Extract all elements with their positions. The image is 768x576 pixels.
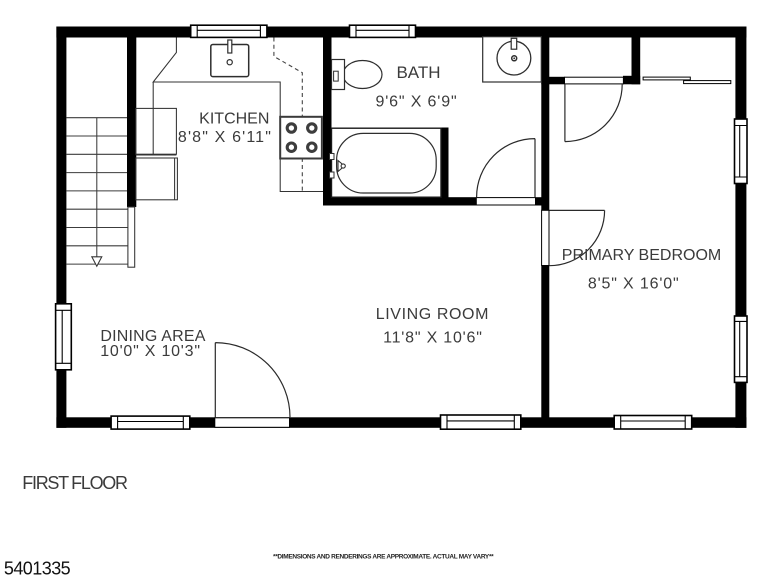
svg-text:**DIMENSIONS AND RENDERINGS AR: **DIMENSIONS AND RENDERINGS ARE APPROXIM…: [273, 554, 494, 561]
svg-text:BATH: BATH: [396, 63, 440, 82]
svg-text:LIVING ROOM: LIVING ROOM: [376, 306, 489, 323]
svg-text:FIRST FLOOR: FIRST FLOOR: [22, 473, 128, 493]
svg-text:10'0" X 10'3": 10'0" X 10'3": [100, 343, 201, 360]
svg-text:9'6" X 6'9": 9'6" X 6'9": [376, 94, 458, 111]
svg-text:8'8" X 6'11": 8'8" X 6'11": [178, 129, 272, 146]
svg-text:PRIMARY BEDROOM: PRIMARY BEDROOM: [562, 247, 721, 264]
svg-text:11'8" X 10'6": 11'8" X 10'6": [383, 330, 483, 347]
svg-text:5401335: 5401335: [4, 558, 71, 576]
svg-text:8'5" X 16'0": 8'5" X 16'0": [588, 276, 680, 293]
svg-text:KITCHEN: KITCHEN: [199, 110, 269, 127]
